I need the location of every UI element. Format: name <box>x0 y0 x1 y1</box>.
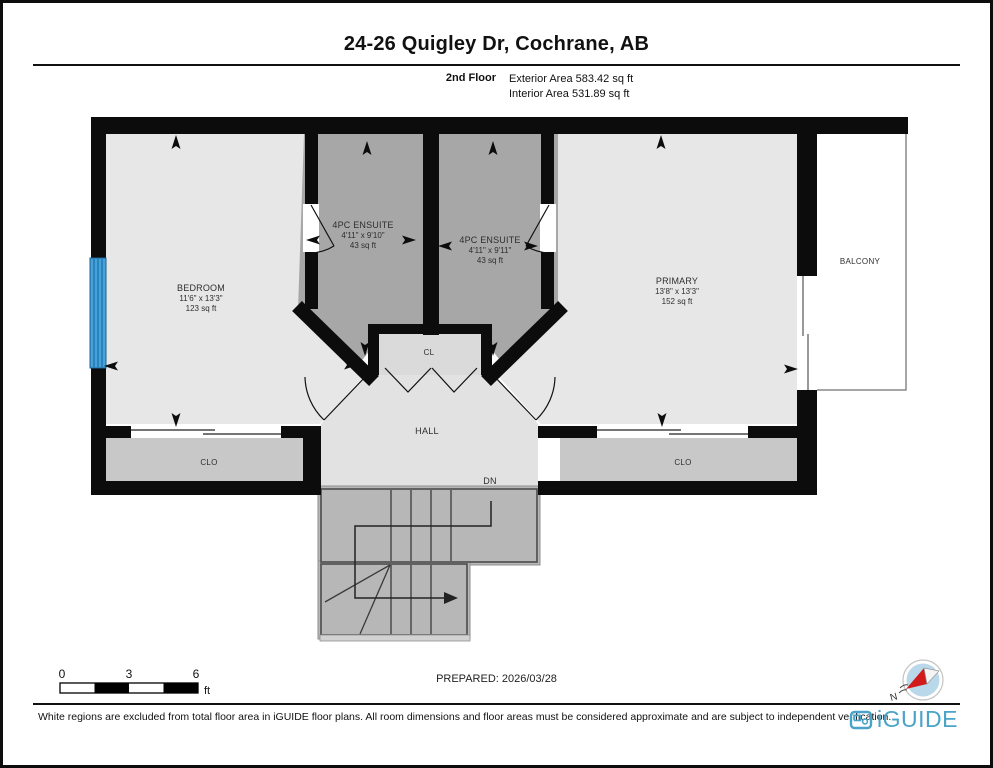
wall-between-ensuites <box>423 134 439 335</box>
label-ensuite2-area: 43 sq ft <box>477 256 504 265</box>
room-clo-right-floor <box>560 431 800 483</box>
label-bedroom-area: 123 sq ft <box>186 304 217 313</box>
label-bedroom-name: BEDROOM <box>177 283 225 293</box>
opening-ensuite2-door <box>540 204 556 252</box>
iguide-logo: iGUIDE <box>849 706 958 733</box>
wall-clo-right-a <box>538 426 597 438</box>
stairs-lip <box>320 635 470 641</box>
opening-ensuite1-door <box>303 204 319 252</box>
scale-unit: ft <box>204 685 210 697</box>
wall-ensuite2-upper <box>541 134 554 204</box>
label-clo-right: CLO <box>674 458 691 467</box>
wall-top <box>91 117 908 134</box>
label-bedroom-dims: 11'6" x 13'3" <box>179 294 222 303</box>
label-ensuite1-name: 4PC ENSUITE <box>332 220 393 230</box>
wall-ensuite1-lower <box>305 252 318 309</box>
disclaimer-text: White regions are excluded from total fl… <box>38 711 891 723</box>
opening-clo-left <box>131 426 281 438</box>
label-hall: HALL <box>415 426 439 436</box>
room-clo-left-floor <box>103 431 306 483</box>
wall-bottom-left <box>91 481 321 495</box>
label-dn: DN <box>483 476 497 486</box>
label-ensuite1-area: 43 sq ft <box>350 241 377 250</box>
wall-right-lower <box>797 390 817 495</box>
label-cl: CL <box>424 348 435 357</box>
prepared-date: PREPARED: 2026/03/28 <box>3 673 990 685</box>
label-ensuite1-dims: 4'11" x 9'10" <box>341 231 384 240</box>
label-clo-left: CLO <box>200 458 217 467</box>
opening-clo-right <box>597 426 748 438</box>
wall-clo-left-a <box>91 426 131 438</box>
floorplan-page: 24-26 Quigley Dr, Cochrane, AB 2nd Floor… <box>0 0 993 768</box>
label-primary-area: 152 sq ft <box>662 297 693 306</box>
wall-hall-left <box>303 426 321 487</box>
wall-clo-left-b <box>281 426 305 438</box>
iguide-logo-text: iGUIDE <box>877 706 958 733</box>
wall-right-upper <box>797 117 817 276</box>
wall-bottom-right <box>538 481 817 495</box>
footer-divider <box>33 703 960 705</box>
label-ensuite2-dims: 4'11" x 9'11" <box>469 246 512 255</box>
floorplan-drawing: BEDROOM 11'6" x 13'3" 123 sq ft 4PC ENSU… <box>3 3 993 768</box>
label-ensuite2-name: 4PC ENSUITE <box>459 235 520 245</box>
iguide-logo-icon <box>849 709 873 731</box>
label-balcony: BALCONY <box>840 257 881 266</box>
label-primary-dims: 13'8" x 13'3" <box>655 287 699 296</box>
wall-ensuite2-lower <box>541 252 554 309</box>
wall-clo-right-b <box>748 426 817 438</box>
stairs <box>318 486 540 641</box>
label-primary-name: PRIMARY <box>656 276 698 286</box>
opening-balcony-door <box>797 276 817 390</box>
wall-cl-top <box>368 324 492 334</box>
window-bedroom <box>90 258 106 368</box>
wall-ensuite1-upper <box>305 134 318 204</box>
